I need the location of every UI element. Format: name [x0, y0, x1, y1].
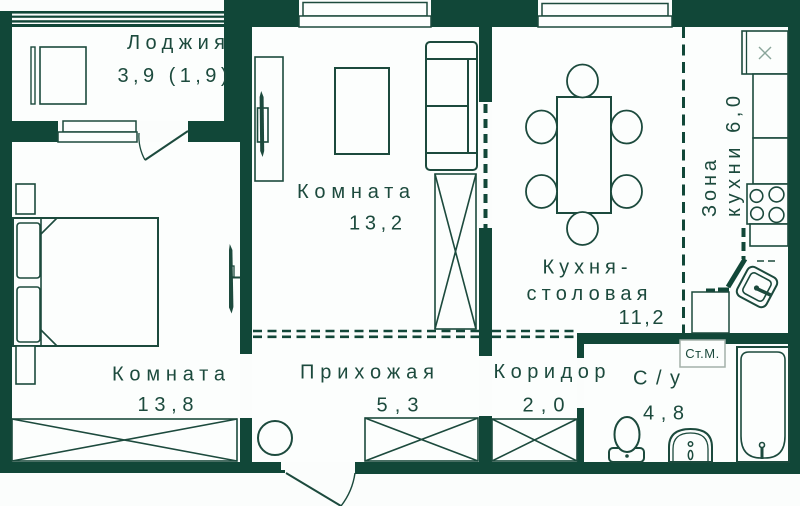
svg-text:2,0: 2,0: [523, 395, 565, 417]
svg-text:13,2: 13,2: [349, 213, 402, 235]
svg-text:3,9 (1,9): 3,9 (1,9): [118, 65, 228, 87]
svg-text:Коридор: Коридор: [494, 361, 606, 383]
svg-text:4,8: 4,8: [643, 403, 684, 425]
svg-text:кухни 6,0: кухни 6,0: [723, 96, 745, 217]
svg-text:11,2: 11,2: [619, 307, 664, 329]
svg-text:5,3: 5,3: [377, 395, 419, 417]
svg-text:Ст.М.: Ст.М.: [685, 346, 719, 361]
svg-text:С/у: С/у: [633, 368, 680, 390]
